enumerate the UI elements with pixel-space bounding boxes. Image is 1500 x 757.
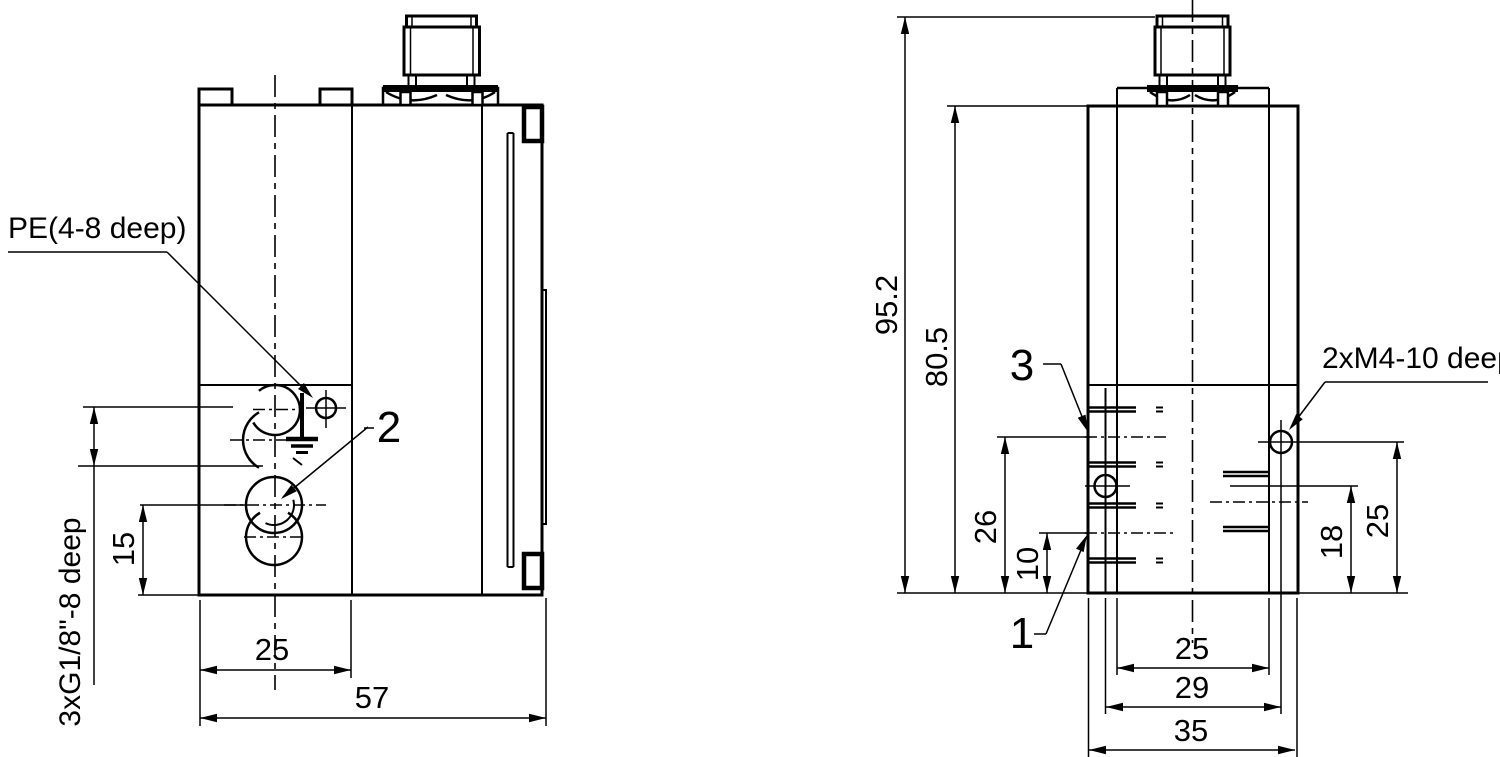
m4-callout: 2xM4-10 deep [1286,342,1500,433]
dim-text-10: 10 [1010,547,1045,581]
dim-text-26: 26 [968,510,1003,544]
arrowhead [1089,746,1106,754]
nut-foot [401,92,411,105]
arrowhead [139,505,147,522]
dim-text-15: 15 [106,532,141,566]
m4-callout-text: 2xM4-10 deep [1322,342,1500,375]
arrowhead [1347,486,1355,503]
arrowhead [901,576,909,593]
dim-text-95-2: 95.2 [869,275,904,335]
dim-26: 26 [968,437,1009,593]
drawing-canvas: 15 25 57 PE(4-8 deep) [0,0,1500,757]
dim-57: 57 [200,680,546,722]
top-tab-left [199,89,232,105]
item-3-label: 3 [1010,341,1092,434]
arrowhead [139,578,147,595]
clip-bottom [524,554,542,588]
arrowhead [951,106,959,123]
arrowhead [1001,437,1009,454]
dim-text-57: 57 [355,680,389,715]
arrowhead [90,407,98,424]
front-thread-marks [1088,408,1269,563]
connector-barrel [404,27,480,75]
arrowhead [90,449,98,466]
dim-35: 35 [1089,713,1295,754]
port-arc-bottom [246,513,302,565]
arrowhead [200,666,217,674]
side-ports [224,385,346,565]
arrowhead [1106,703,1123,711]
dim-text-80-5: 80.5 [919,327,954,387]
nut-foot [473,92,483,105]
arrowhead [1001,576,1009,593]
ground-tail [293,458,302,465]
arrowhead [529,714,546,722]
arrowhead [1286,414,1303,433]
side-connector [383,16,498,105]
front-view: 95.2 80.5 26 10 [869,0,1500,757]
thread-callout: 3xG1/8"-8 deep [54,517,87,726]
top-tab-right [320,89,352,105]
leader-line [1046,538,1086,634]
clip-top [524,107,542,141]
dim-text-29: 29 [1175,670,1209,705]
side-dimensions: 15 25 57 [78,407,546,726]
nut-scallop [446,92,495,100]
arrowhead [1117,664,1134,672]
side-view: 15 25 57 PE(4-8 deep) [8,16,546,727]
dim-29: 29 [1106,670,1281,711]
arrowhead [951,576,959,593]
technical-drawing: 15 25 57 PE(4-8 deep) [0,0,1500,757]
pe-callout-text: PE(4-8 deep) [8,212,186,245]
arrowhead [1278,746,1295,754]
dim-80-5: 80.5 [919,106,959,593]
dim-text-25: 25 [255,632,289,667]
pe-callout: PE(4-8 deep) [8,212,316,401]
arrowhead [1264,703,1281,711]
connector-cap [407,16,477,27]
nut-foot [1218,92,1228,106]
dim-10: 10 [1010,533,1051,593]
dim-18: 18 [1314,486,1355,593]
arrowhead [334,666,351,674]
arrowhead [1347,576,1355,593]
item-1-text: 1 [1010,609,1034,658]
front-dimensions: 95.2 80.5 26 10 [869,17,1408,757]
nut-foot [1157,92,1167,106]
dim-95-2: 95.2 [869,17,909,593]
dim-text-25-bottom: 25 [1175,631,1209,666]
arrowhead [200,714,217,722]
dim-text-35: 35 [1174,713,1208,748]
arrowhead [1393,442,1401,459]
thread-callout-text: 3xG1/8"-8 deep [54,517,87,726]
dim-15: 15 [106,505,147,595]
item-3-text: 3 [1010,341,1034,390]
left-port-marks [1088,408,1163,563]
leader-line [167,252,310,395]
arrowhead [901,17,909,34]
dim-25-bottom: 25 [1117,631,1269,672]
dim-25-right: 25 [1360,442,1401,593]
item-2-text: 2 [377,403,401,452]
arrowhead [1252,664,1269,672]
dim-text-25-right: 25 [1360,504,1395,538]
dim-text-18: 18 [1314,525,1349,559]
arrowhead [1078,415,1092,434]
arrowhead [1393,576,1401,593]
